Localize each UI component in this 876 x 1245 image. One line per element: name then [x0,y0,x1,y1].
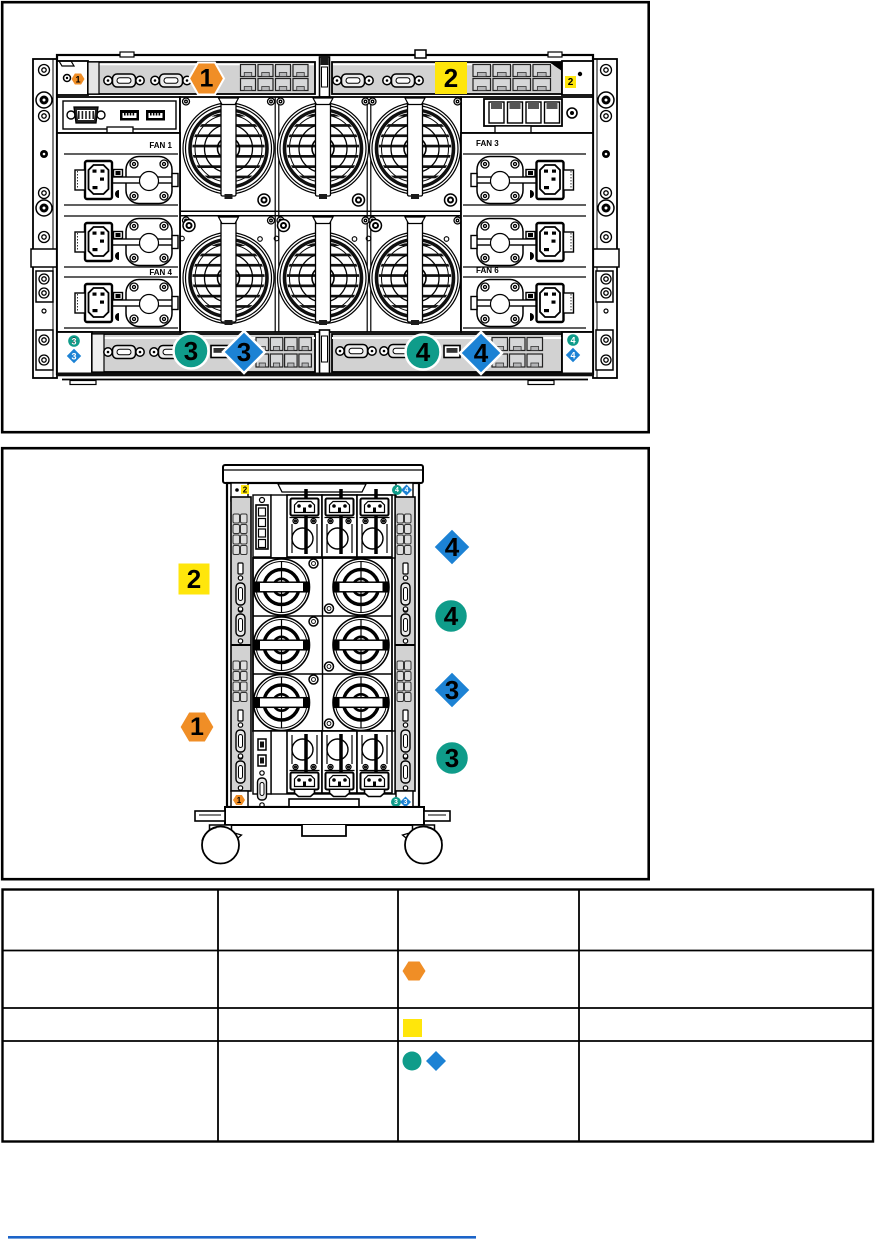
svg-text:2: 2 [444,63,458,93]
svg-text:2: 2 [568,77,574,88]
svg-text:3: 3 [445,743,459,773]
svg-text:3: 3 [237,337,251,367]
svg-text:2: 2 [243,486,248,495]
svg-text:3: 3 [184,336,198,366]
svg-text:3: 3 [445,675,459,705]
svg-text:1: 1 [237,796,242,805]
svg-text:1: 1 [200,65,214,93]
svg-text:4: 4 [570,336,575,346]
svg-text:4: 4 [405,487,409,494]
svg-text:4: 4 [474,338,489,368]
svg-text:3: 3 [394,799,398,806]
svg-text:3: 3 [404,799,408,806]
svg-text:3: 3 [71,337,76,347]
svg-text:4: 4 [416,337,431,367]
svg-text:4: 4 [445,532,460,562]
svg-text:1: 1 [190,713,204,741]
svg-text:1: 1 [75,75,80,85]
svg-text:3: 3 [71,352,76,362]
svg-text:4: 4 [570,351,575,361]
svg-text:FAN 3: FAN 3 [476,139,499,148]
svg-text:2: 2 [187,564,201,594]
svg-text:4: 4 [395,487,399,494]
svg-text:FAN 4: FAN 4 [149,268,172,277]
svg-text:FAN 1: FAN 1 [149,141,172,150]
svg-text:4: 4 [444,601,459,631]
